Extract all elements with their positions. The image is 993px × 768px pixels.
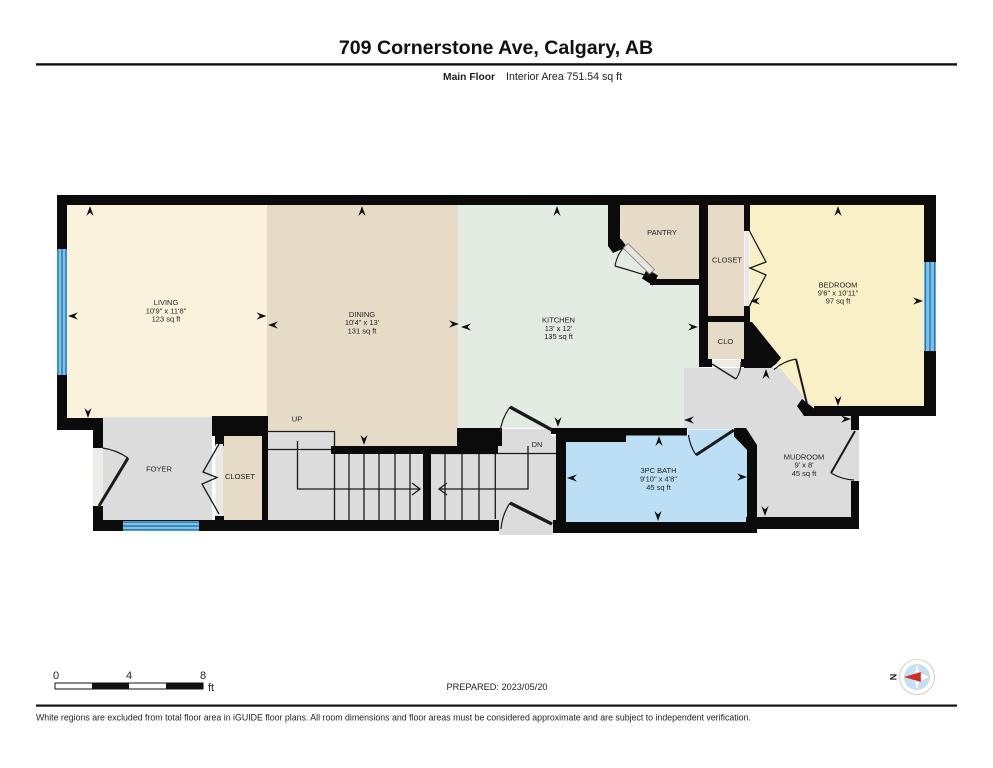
svg-text:135 sq ft: 135 sq ft bbox=[544, 332, 574, 341]
svg-text:45 sq ft: 45 sq ft bbox=[792, 469, 818, 478]
svg-text:ft: ft bbox=[208, 682, 214, 694]
svg-text:Interior Area 751.54 sq ft: Interior Area 751.54 sq ft bbox=[506, 71, 622, 83]
svg-text:UP: UP bbox=[292, 415, 302, 424]
svg-text:PREPARED: 2023/05/20: PREPARED: 2023/05/20 bbox=[447, 682, 548, 692]
svg-text:CLO: CLO bbox=[718, 337, 734, 346]
svg-text:45 sq ft: 45 sq ft bbox=[646, 483, 672, 492]
svg-text:0: 0 bbox=[53, 670, 59, 682]
svg-text:131 sq ft: 131 sq ft bbox=[348, 327, 378, 336]
svg-text:Main Floor: Main Floor bbox=[443, 72, 495, 83]
svg-text:709 Cornerstone Ave, Calgary,: 709 Cornerstone Ave, Calgary, AB bbox=[339, 37, 653, 59]
svg-text:N: N bbox=[889, 674, 899, 681]
svg-text:PANTRY: PANTRY bbox=[647, 228, 677, 237]
svg-text:DN: DN bbox=[532, 440, 543, 449]
svg-text:White regions are excluded fro: White regions are excluded from total fl… bbox=[36, 713, 751, 723]
svg-text:97 sq ft: 97 sq ft bbox=[826, 297, 852, 306]
svg-text:FOYER: FOYER bbox=[146, 465, 172, 474]
svg-text:CLOSET: CLOSET bbox=[712, 256, 742, 265]
svg-text:8: 8 bbox=[200, 670, 206, 682]
svg-text:CLOSET: CLOSET bbox=[225, 472, 255, 481]
svg-text:4: 4 bbox=[126, 670, 132, 682]
svg-text:123 sq ft: 123 sq ft bbox=[152, 315, 182, 324]
